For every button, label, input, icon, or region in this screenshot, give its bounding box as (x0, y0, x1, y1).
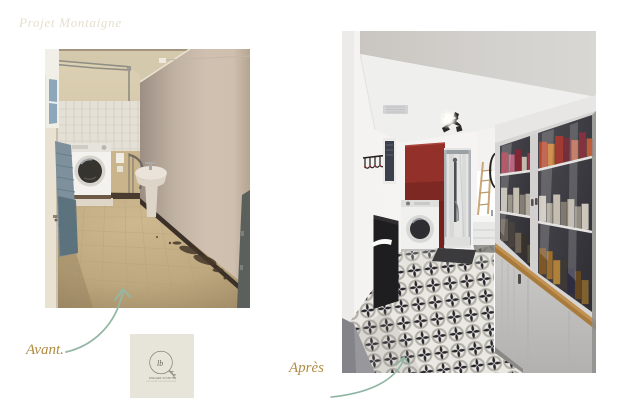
svg-text:lb: lb (157, 359, 163, 368)
svg-text:DECORATION INTERIEURE: DECORATION INTERIEURE (146, 380, 177, 383)
svg-text:ATELIER D'ONYX: ATELIER D'ONYX (149, 376, 174, 380)
